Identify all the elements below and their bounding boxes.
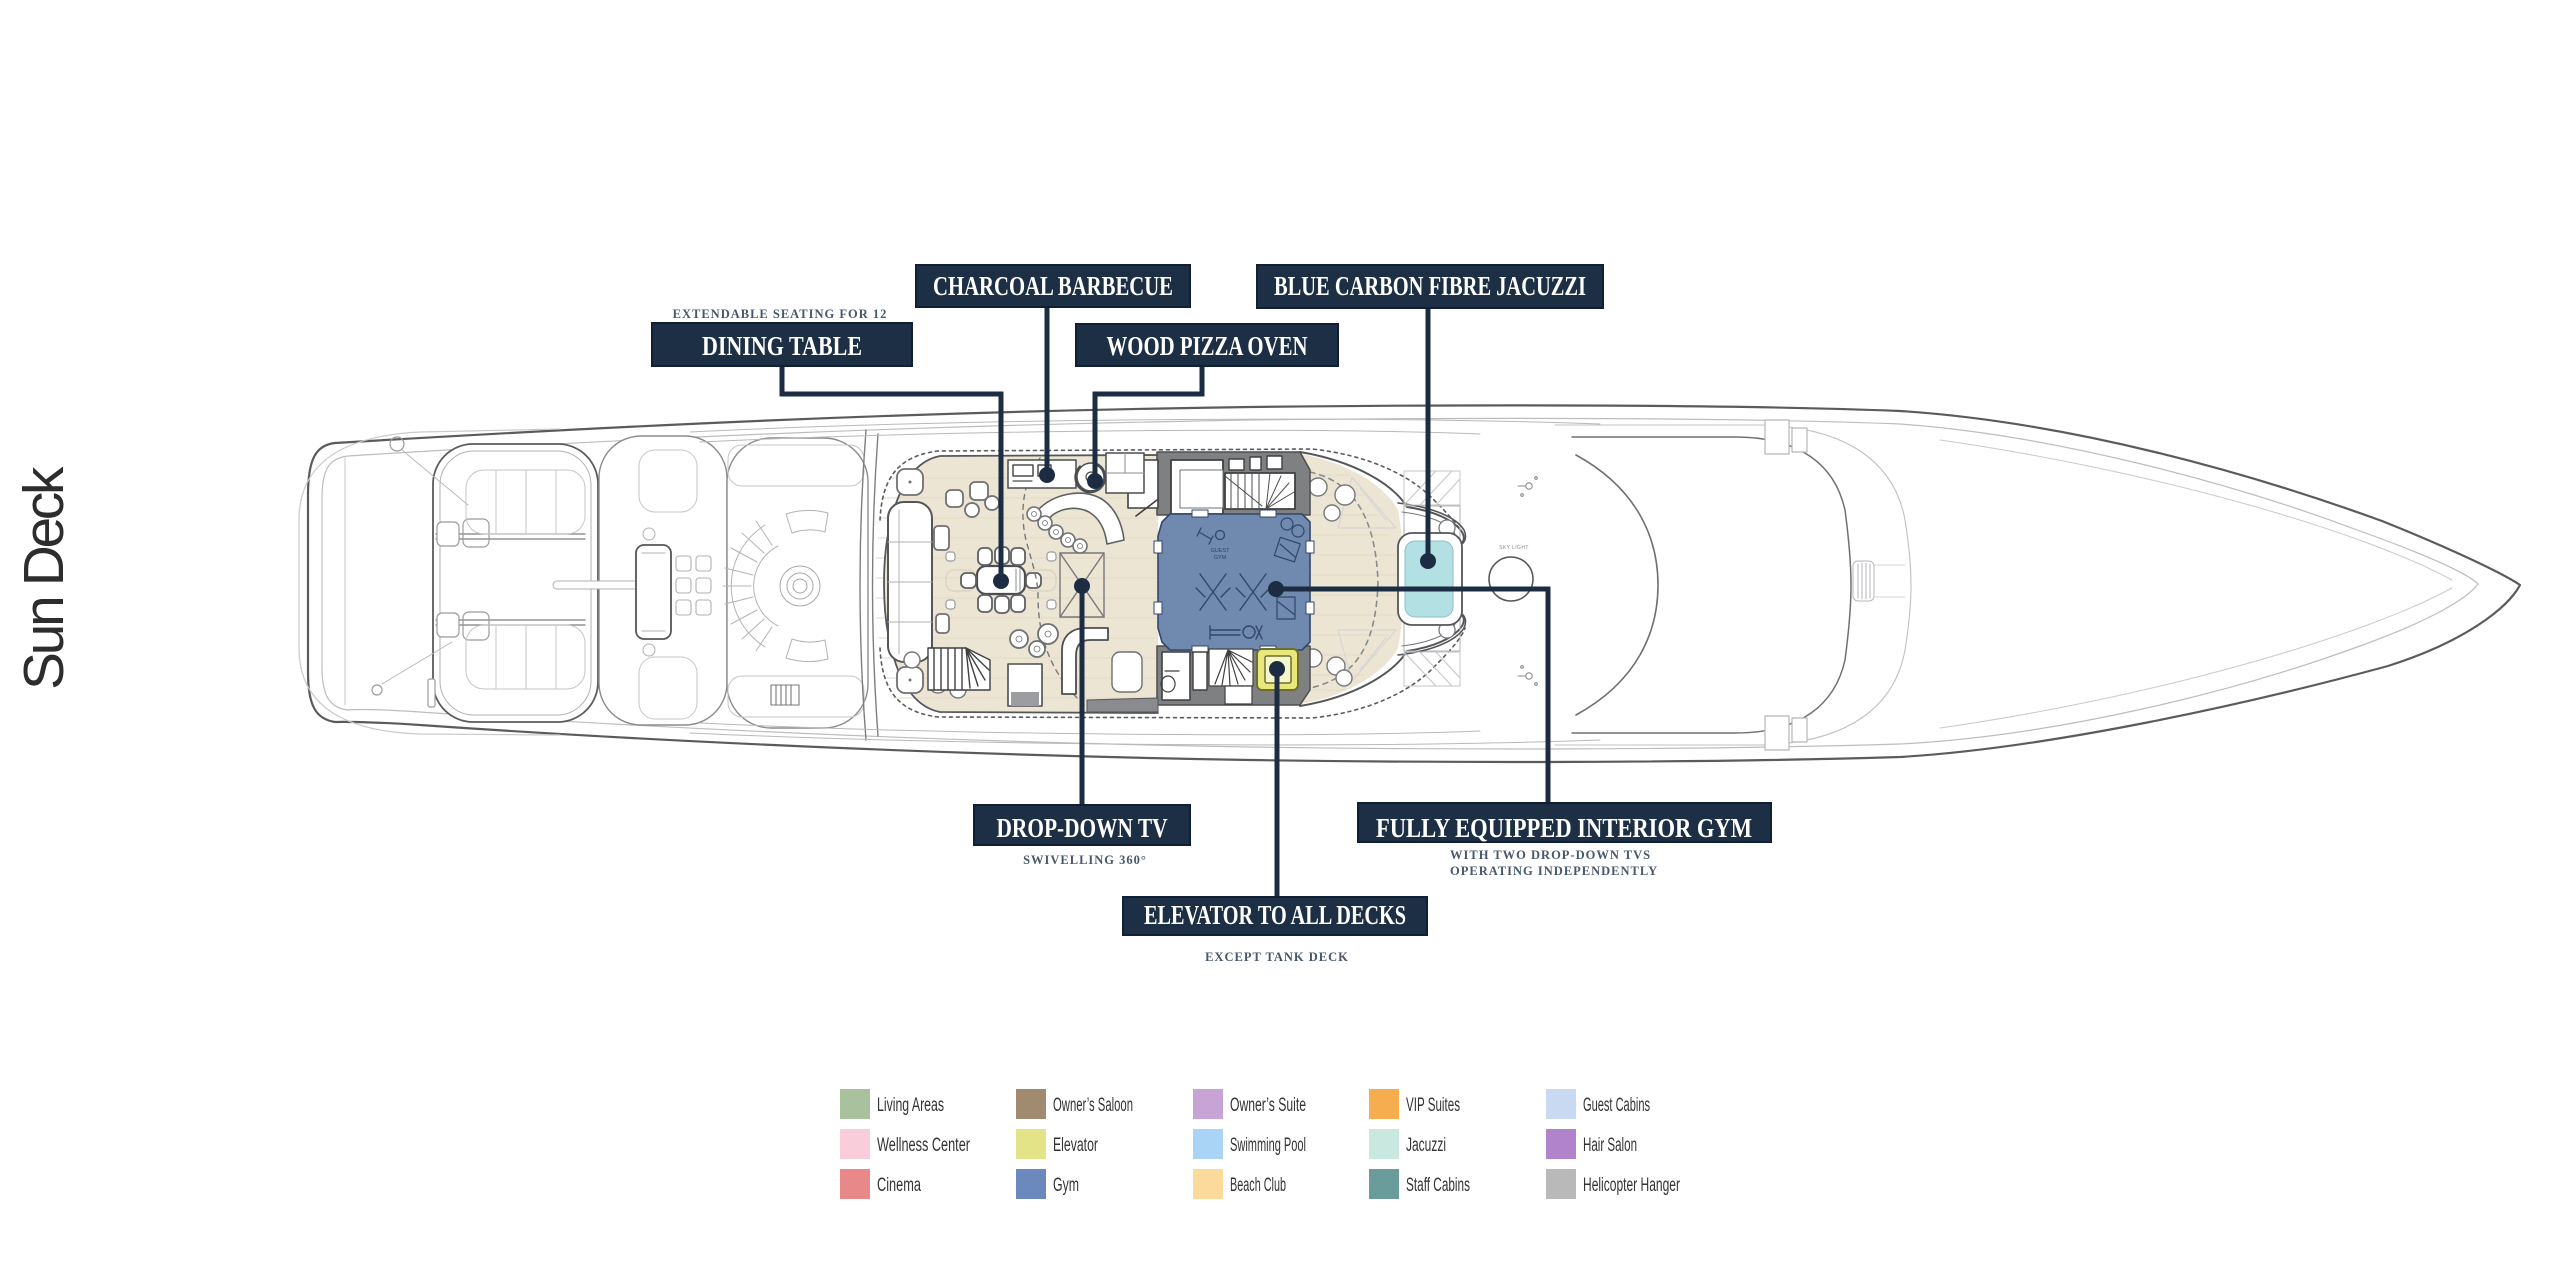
svg-text:Beach Club: Beach Club <box>1230 1175 1286 1196</box>
svg-text:DINING TABLE: DINING TABLE <box>702 331 862 361</box>
svg-text:Jacuzzi: Jacuzzi <box>1406 1135 1446 1156</box>
svg-text:DROP-DOWN TV: DROP-DOWN TV <box>997 813 1168 843</box>
svg-text:Cinema: Cinema <box>877 1175 921 1196</box>
svg-text:Guest Cabins: Guest Cabins <box>1583 1095 1650 1116</box>
svg-text:Staff Cabins: Staff Cabins <box>1406 1175 1470 1196</box>
svg-text:Helicopter Hanger: Helicopter Hanger <box>1583 1175 1680 1196</box>
svg-text:Swimming Pool: Swimming Pool <box>1230 1135 1306 1156</box>
svg-text:VIP Suites: VIP Suites <box>1406 1095 1460 1116</box>
svg-text:FULLY EQUIPPED INTERIOR GYM: FULLY EQUIPPED INTERIOR GYM <box>1376 813 1752 843</box>
svg-text:WOOD PIZZA OVEN: WOOD PIZZA OVEN <box>1107 331 1308 361</box>
svg-text:EXCEPT TANK DECK: EXCEPT TANK DECK <box>1205 950 1349 964</box>
svg-text:CHARCOAL BARBECUE: CHARCOAL BARBECUE <box>933 271 1173 301</box>
svg-text:WITH TWO DROP-DOWN TVS: WITH TWO DROP-DOWN TVS <box>1450 848 1651 862</box>
svg-text:GYM: GYM <box>1214 555 1227 561</box>
svg-text:Owner’s Suite: Owner’s Suite <box>1230 1095 1306 1116</box>
svg-text:Living Areas: Living Areas <box>877 1095 944 1116</box>
svg-text:ELEVATOR TO ALL DECKS: ELEVATOR TO ALL DECKS <box>1144 900 1406 930</box>
svg-text:SKY LIGHT: SKY LIGHT <box>1499 545 1529 551</box>
svg-text:Hair Salon: Hair Salon <box>1583 1135 1637 1156</box>
svg-text:Gym: Gym <box>1053 1175 1079 1196</box>
svg-text:SWIVELLING 360°: SWIVELLING 360° <box>1023 853 1147 867</box>
svg-text:EXTENDABLE SEATING FOR 12: EXTENDABLE SEATING FOR 12 <box>673 307 888 321</box>
svg-text:Sun Deck: Sun Deck <box>12 466 76 690</box>
svg-text:Wellness Center: Wellness Center <box>877 1135 970 1156</box>
svg-text:Owner’s Saloon: Owner’s Saloon <box>1053 1095 1133 1116</box>
svg-text:BLUE CARBON FIBRE JACUZZI: BLUE CARBON FIBRE JACUZZI <box>1274 271 1586 301</box>
svg-text:GUEST: GUEST <box>1211 548 1231 554</box>
svg-text:OPERATING INDEPENDENTLY: OPERATING INDEPENDENTLY <box>1450 864 1658 878</box>
svg-text:Elevator: Elevator <box>1053 1135 1098 1156</box>
